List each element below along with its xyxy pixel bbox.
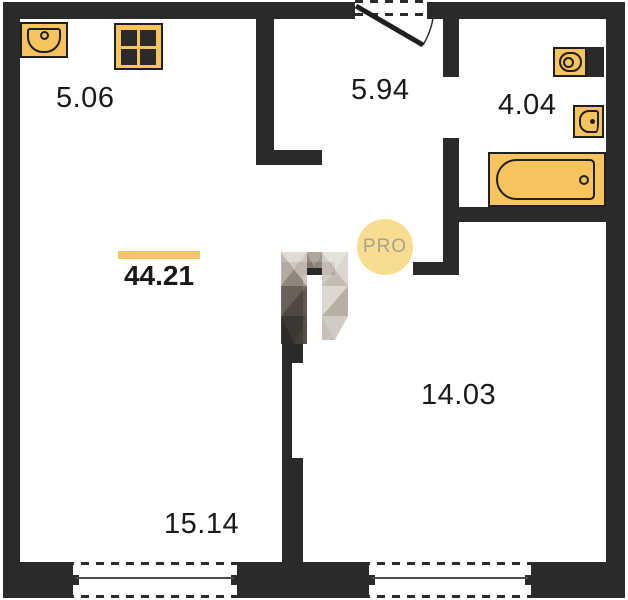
wall-right [606, 2, 625, 598]
toilet-tank [587, 47, 604, 77]
company-logo-watermark-icon [281, 246, 348, 344]
window-pane-line [372, 577, 528, 579]
left-window [66, 562, 244, 598]
window-dash-top [362, 562, 538, 565]
kitchen-area-label: 5.06 [56, 82, 114, 115]
total-area-underline [118, 251, 200, 259]
window-cap [66, 562, 73, 598]
total-area-label: 44.21 [118, 260, 200, 292]
window-cap [362, 562, 369, 598]
wall-hallway-left [256, 19, 274, 165]
floor-plan: 5.06 5.94 4.04 14.03 15.14 44.21 PRO [0, 0, 628, 600]
wall-divider-v-bottom [282, 458, 303, 562]
washbasin-icon [573, 105, 604, 138]
wall-divider-h-right [413, 262, 459, 275]
bathroom-area-label: 4.04 [498, 89, 556, 122]
toilet-icon [553, 46, 604, 77]
bedroom-area-label: 14.03 [421, 379, 496, 412]
entrance-door-icon [340, 0, 440, 60]
window-dash-bottom [66, 595, 244, 598]
pro-watermark-badge: PRO [357, 219, 413, 275]
wall-bottom-1 [3, 562, 66, 598]
hallway-area-label: 5.94 [351, 74, 409, 107]
wall-top-right [427, 2, 625, 19]
window-dash-bottom [362, 595, 538, 598]
right-window [362, 562, 538, 598]
kitchen-sink-icon [20, 22, 68, 58]
wall-bathroom-bottom [443, 207, 606, 222]
window-cap [237, 562, 244, 598]
window-dash-top [66, 562, 244, 565]
window-pane-line [76, 577, 234, 579]
bathtub-icon [488, 152, 606, 207]
wall-bottom-3 [538, 562, 625, 598]
wall-left [3, 2, 20, 598]
living-room-area-label: 15.14 [164, 508, 239, 541]
wall-bathroom-upper [443, 19, 459, 77]
wall-top-left [3, 2, 355, 19]
wall-bottom-2 [244, 562, 362, 598]
stove-icon [114, 23, 163, 70]
window-cap [531, 562, 538, 598]
wall-hallway-stub [274, 150, 322, 165]
wall-divider-v-thin [282, 363, 292, 458]
